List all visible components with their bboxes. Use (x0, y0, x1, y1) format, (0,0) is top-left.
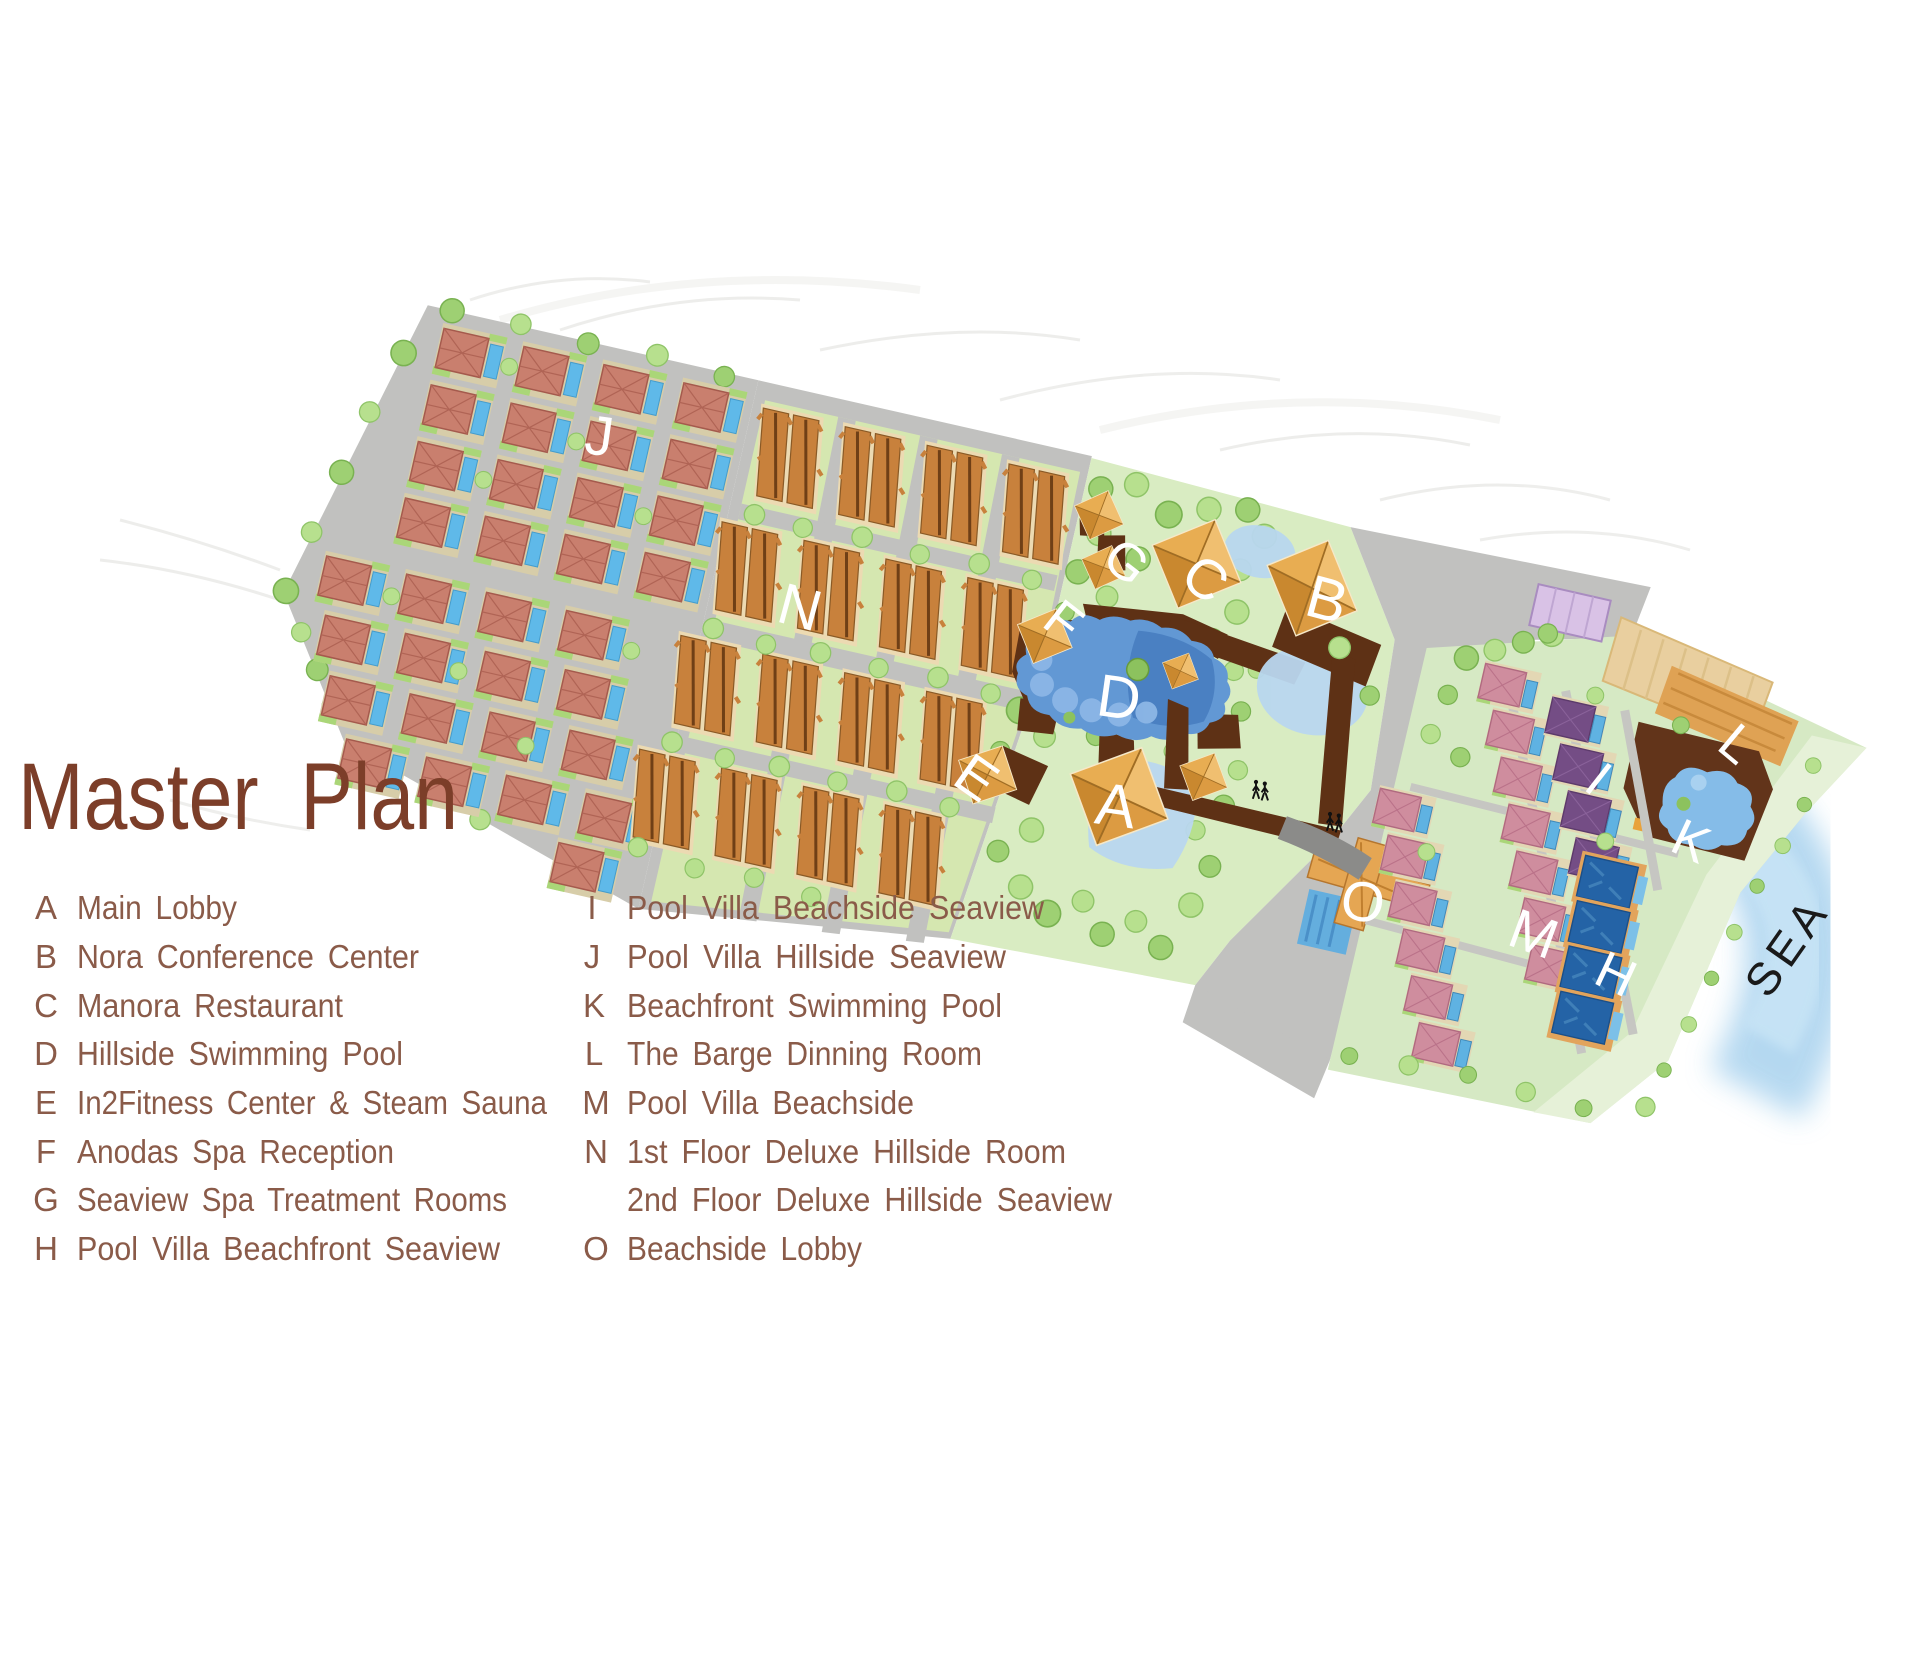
svg-text:B: B (35, 938, 57, 975)
svg-text:N: N (584, 1133, 608, 1170)
svg-text:I: I (587, 889, 596, 926)
svg-text:The Barge Dinning Room: The Barge Dinning Room (627, 1035, 982, 1072)
svg-text:L: L (585, 1035, 603, 1072)
svg-text:H: H (34, 1230, 58, 1267)
svg-text:Seaview Spa Treatment Rooms: Seaview Spa Treatment Rooms (77, 1181, 507, 1218)
svg-text:Pool Villa Hillside Seaview: Pool Villa Hillside Seaview (627, 938, 1006, 975)
svg-text:O: O (583, 1230, 609, 1267)
svg-text:1st Floor Deluxe Hillside Room: 1st Floor Deluxe Hillside Room (627, 1133, 1066, 1170)
svg-text:J: J (584, 938, 601, 975)
svg-text:Master Plan: Master Plan (18, 744, 458, 850)
svg-text:Anodas Spa Reception: Anodas Spa Reception (77, 1133, 394, 1170)
svg-text:C: C (34, 987, 58, 1024)
svg-text:Beachfront Swimming Pool: Beachfront Swimming Pool (627, 987, 1002, 1024)
svg-text:Hillside Swimming Pool: Hillside Swimming Pool (77, 1035, 403, 1072)
svg-text:Pool Villa Beachside Seaview: Pool Villa Beachside Seaview (627, 889, 1044, 926)
svg-text:Main Lobby: Main Lobby (77, 889, 237, 926)
svg-text:D: D (34, 1035, 58, 1072)
svg-text:G: G (33, 1181, 59, 1218)
svg-text:Beachside Lobby: Beachside Lobby (627, 1230, 862, 1267)
svg-text:2nd Floor Deluxe Hillside Seav: 2nd Floor Deluxe Hillside Seaview (627, 1181, 1112, 1218)
svg-text:In2Fitness Center & Steam Saun: In2Fitness Center & Steam Sauna (77, 1084, 548, 1121)
svg-text:Pool Villa Beachfront Seaview: Pool Villa Beachfront Seaview (77, 1230, 500, 1267)
svg-text:E: E (35, 1084, 57, 1121)
svg-text:D: D (1093, 661, 1145, 733)
svg-text:F: F (36, 1133, 56, 1170)
svg-text:Manora Restaurant: Manora Restaurant (77, 987, 343, 1024)
svg-text:Nora Conference Center: Nora Conference Center (77, 938, 419, 975)
svg-text:Pool Villa Beachside: Pool Villa Beachside (627, 1084, 914, 1121)
svg-text:M: M (582, 1084, 610, 1121)
svg-text:A: A (35, 889, 57, 926)
svg-text:K: K (583, 987, 605, 1024)
